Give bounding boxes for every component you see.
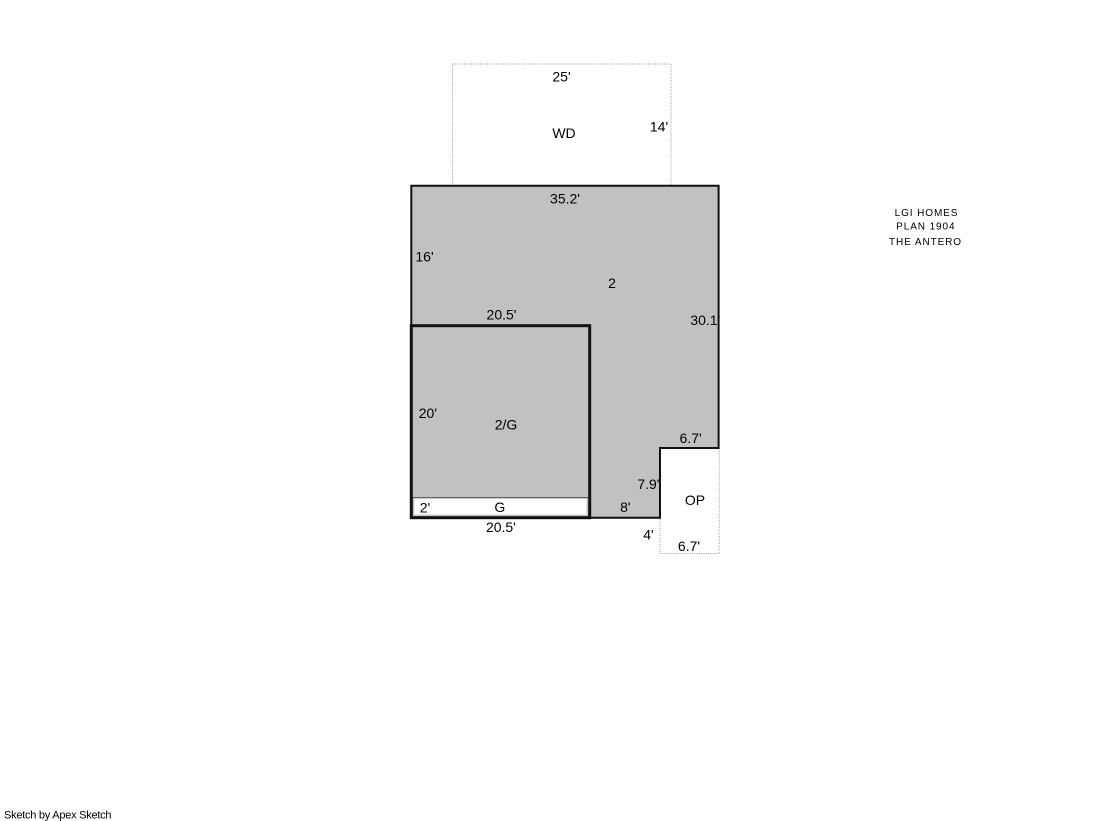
svg-text:16': 16' xyxy=(415,249,433,265)
svg-text:25': 25' xyxy=(552,69,570,85)
svg-text:LGI HOMES: LGI HOMES xyxy=(895,208,959,219)
svg-text:2: 2 xyxy=(608,275,616,291)
svg-text:OP: OP xyxy=(685,492,705,508)
svg-text:20.5': 20.5' xyxy=(487,306,517,322)
svg-text:30.1': 30.1' xyxy=(690,312,720,328)
svg-text:G: G xyxy=(494,499,505,515)
svg-text:2/G: 2/G xyxy=(495,417,518,433)
svg-text:6.7': 6.7' xyxy=(680,430,702,446)
svg-text:PLAN 1904: PLAN 1904 xyxy=(896,222,955,233)
svg-text:THE ANTERO: THE ANTERO xyxy=(889,237,962,248)
svg-text:7.9': 7.9' xyxy=(637,476,659,492)
svg-text:14': 14' xyxy=(650,119,668,135)
svg-text:WD: WD xyxy=(552,125,575,141)
svg-text:8': 8' xyxy=(620,499,630,515)
svg-text:20': 20' xyxy=(419,405,437,421)
svg-text:Sketch by Apex Sketch: Sketch by Apex Sketch xyxy=(4,810,111,821)
svg-text:4': 4' xyxy=(643,527,653,543)
svg-text:20.5': 20.5' xyxy=(486,519,516,535)
svg-text:2': 2' xyxy=(420,500,430,516)
svg-text:35.2': 35.2' xyxy=(550,190,580,206)
svg-text:6.7': 6.7' xyxy=(678,538,700,554)
